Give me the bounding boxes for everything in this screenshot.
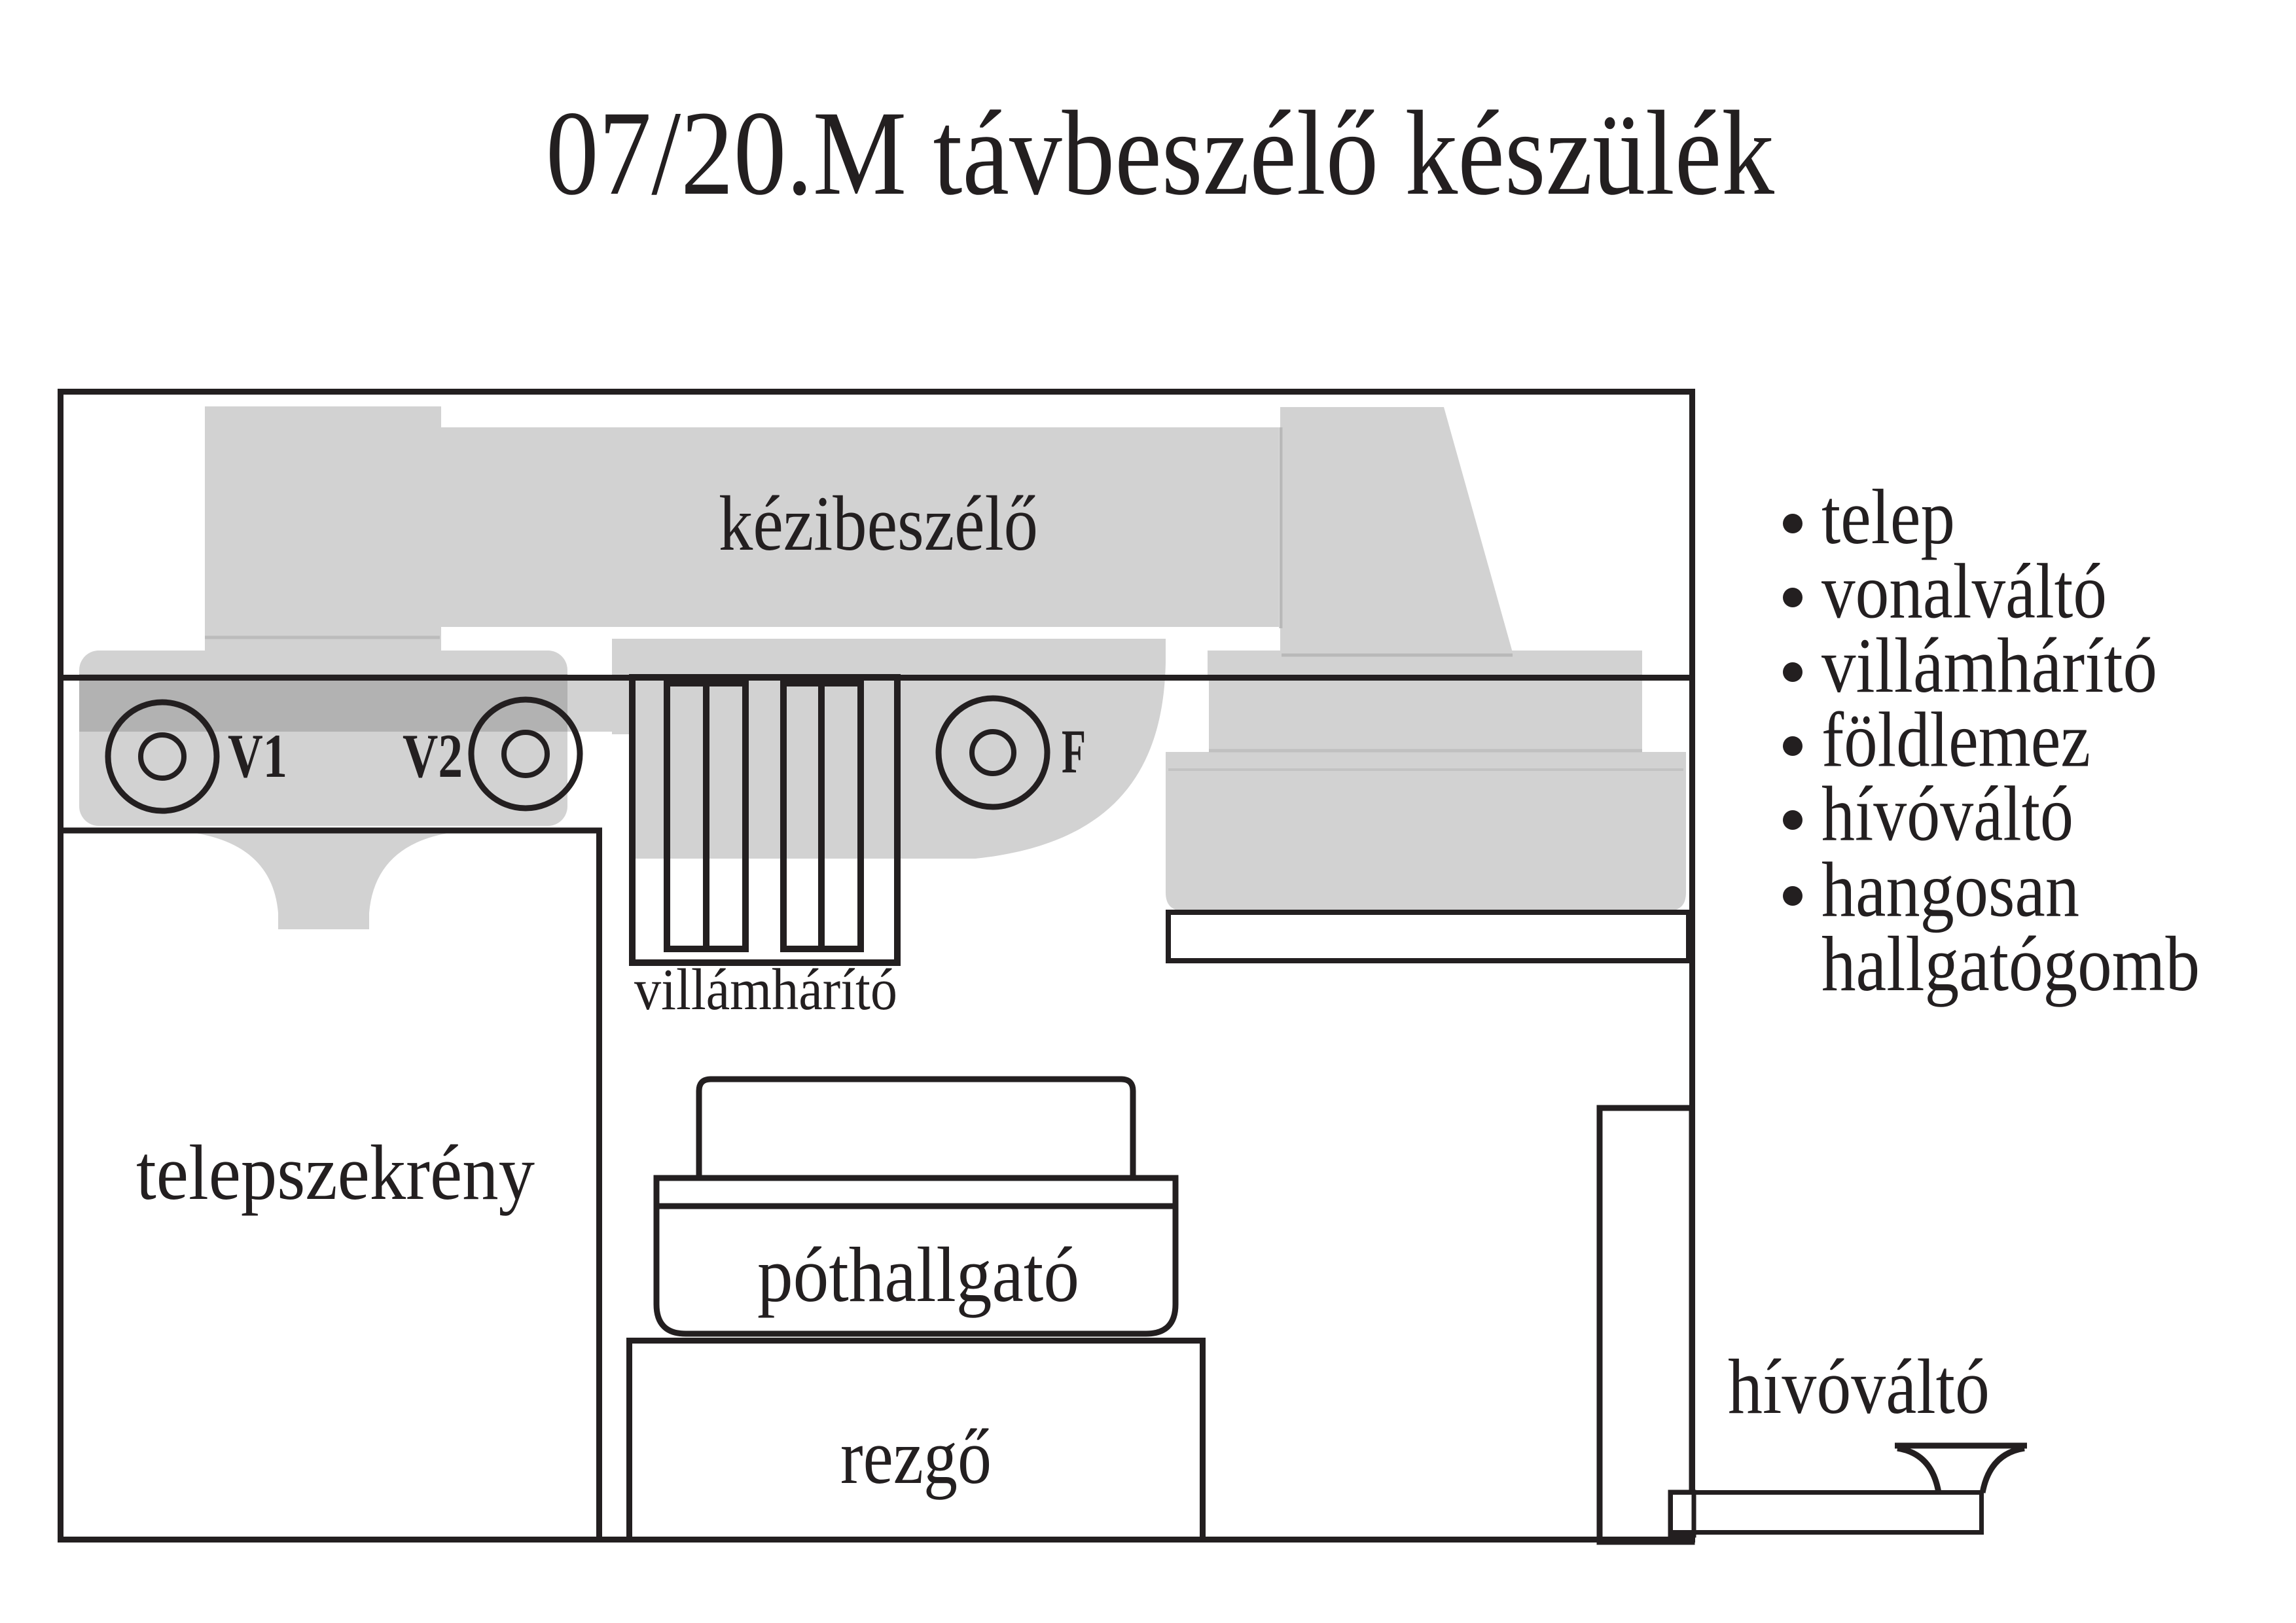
svg-text:V1: V1 [228, 721, 287, 791]
svg-text:F: F [1062, 717, 1086, 786]
svg-text:07/20.M távbeszélő készülék: 07/20.M távbeszélő készülék [546, 86, 1774, 221]
svg-text:hívóváltó: hívóváltó [1728, 1343, 1990, 1430]
svg-text:kézibeszélő: kézibeszélő [719, 480, 1038, 567]
svg-text:hallgatógomb: hallgatógomb [1821, 920, 2200, 1007]
svg-text:hívóváltó: hívóváltó [1821, 770, 2073, 857]
svg-text:villámhárító: villámhárító [634, 957, 897, 1022]
svg-text:póthallgató: póthallgató [757, 1231, 1079, 1318]
svg-text:telepszekrény: telepszekrény [136, 1129, 535, 1216]
svg-text:rezgő: rezgő [840, 1413, 992, 1500]
svg-text:V2: V2 [403, 721, 463, 791]
